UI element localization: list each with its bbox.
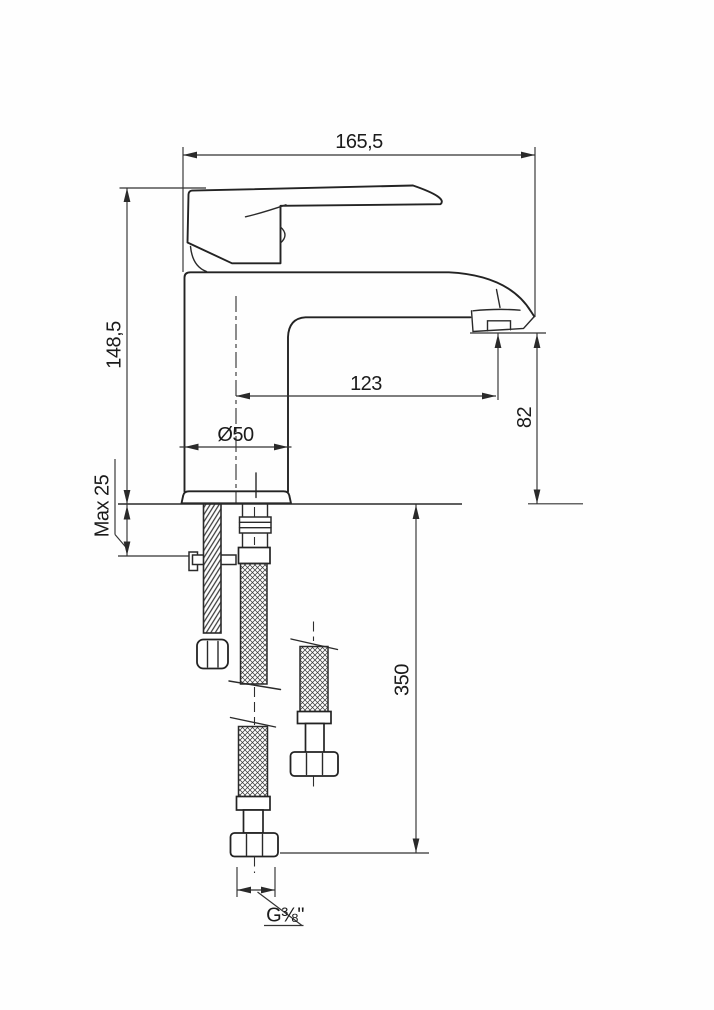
aerator — [472, 309, 535, 331]
dim-overall-width: 165,5 — [183, 131, 535, 317]
hose-hex-nut — [291, 752, 339, 776]
hose-neck — [306, 724, 325, 753]
faucet-outline — [182, 186, 535, 504]
dim-overall-width-label: 165,5 — [335, 131, 383, 153]
hose-hex-nut — [231, 833, 279, 857]
hose-fitting-top — [239, 548, 271, 564]
hose-neck — [244, 810, 264, 833]
hose-break-line — [231, 718, 276, 728]
dim-connection-thread-label: G⅜" — [266, 905, 304, 927]
dim-hose-length-label: 350 — [392, 664, 414, 696]
handle-lever — [188, 186, 442, 272]
spout-tip-mark — [497, 290, 501, 308]
supply-hose-right — [291, 622, 339, 792]
threaded-stud — [204, 504, 222, 633]
mounting-hardware — [118, 504, 236, 669]
dim-max-deck-thickness-label: Max 25 — [92, 474, 114, 537]
braided-hose-upper — [241, 564, 268, 685]
technical-drawing-page: 165,5 148,5 Max 25 Ø50 123 82 — [0, 0, 714, 1010]
dim-base-diameter: Ø50 — [180, 424, 292, 450]
hose-collar — [298, 712, 332, 724]
braided-hose-lower — [239, 727, 268, 798]
dim-overall-height: 148,5 — [104, 188, 207, 504]
dim-spout-reach-label: 123 — [350, 373, 382, 395]
dim-max-deck-thickness: Max 25 — [92, 459, 131, 556]
dim-outlet-height: 82 — [470, 333, 546, 504]
dim-overall-height-label: 148,5 — [104, 321, 126, 369]
hose-collar — [237, 797, 271, 811]
dim-base-diameter-label: Ø50 — [217, 424, 254, 446]
dim-spout-reach: 123 — [236, 334, 501, 401]
faucet-dimension-drawing: 165,5 148,5 Max 25 Ø50 123 82 — [0, 0, 714, 1010]
dim-connection-thread: G⅜" — [237, 867, 304, 927]
knurled-mounting-nut — [197, 640, 228, 669]
dim-outlet-height-label: 82 — [514, 407, 536, 429]
braided-hose — [300, 647, 328, 713]
